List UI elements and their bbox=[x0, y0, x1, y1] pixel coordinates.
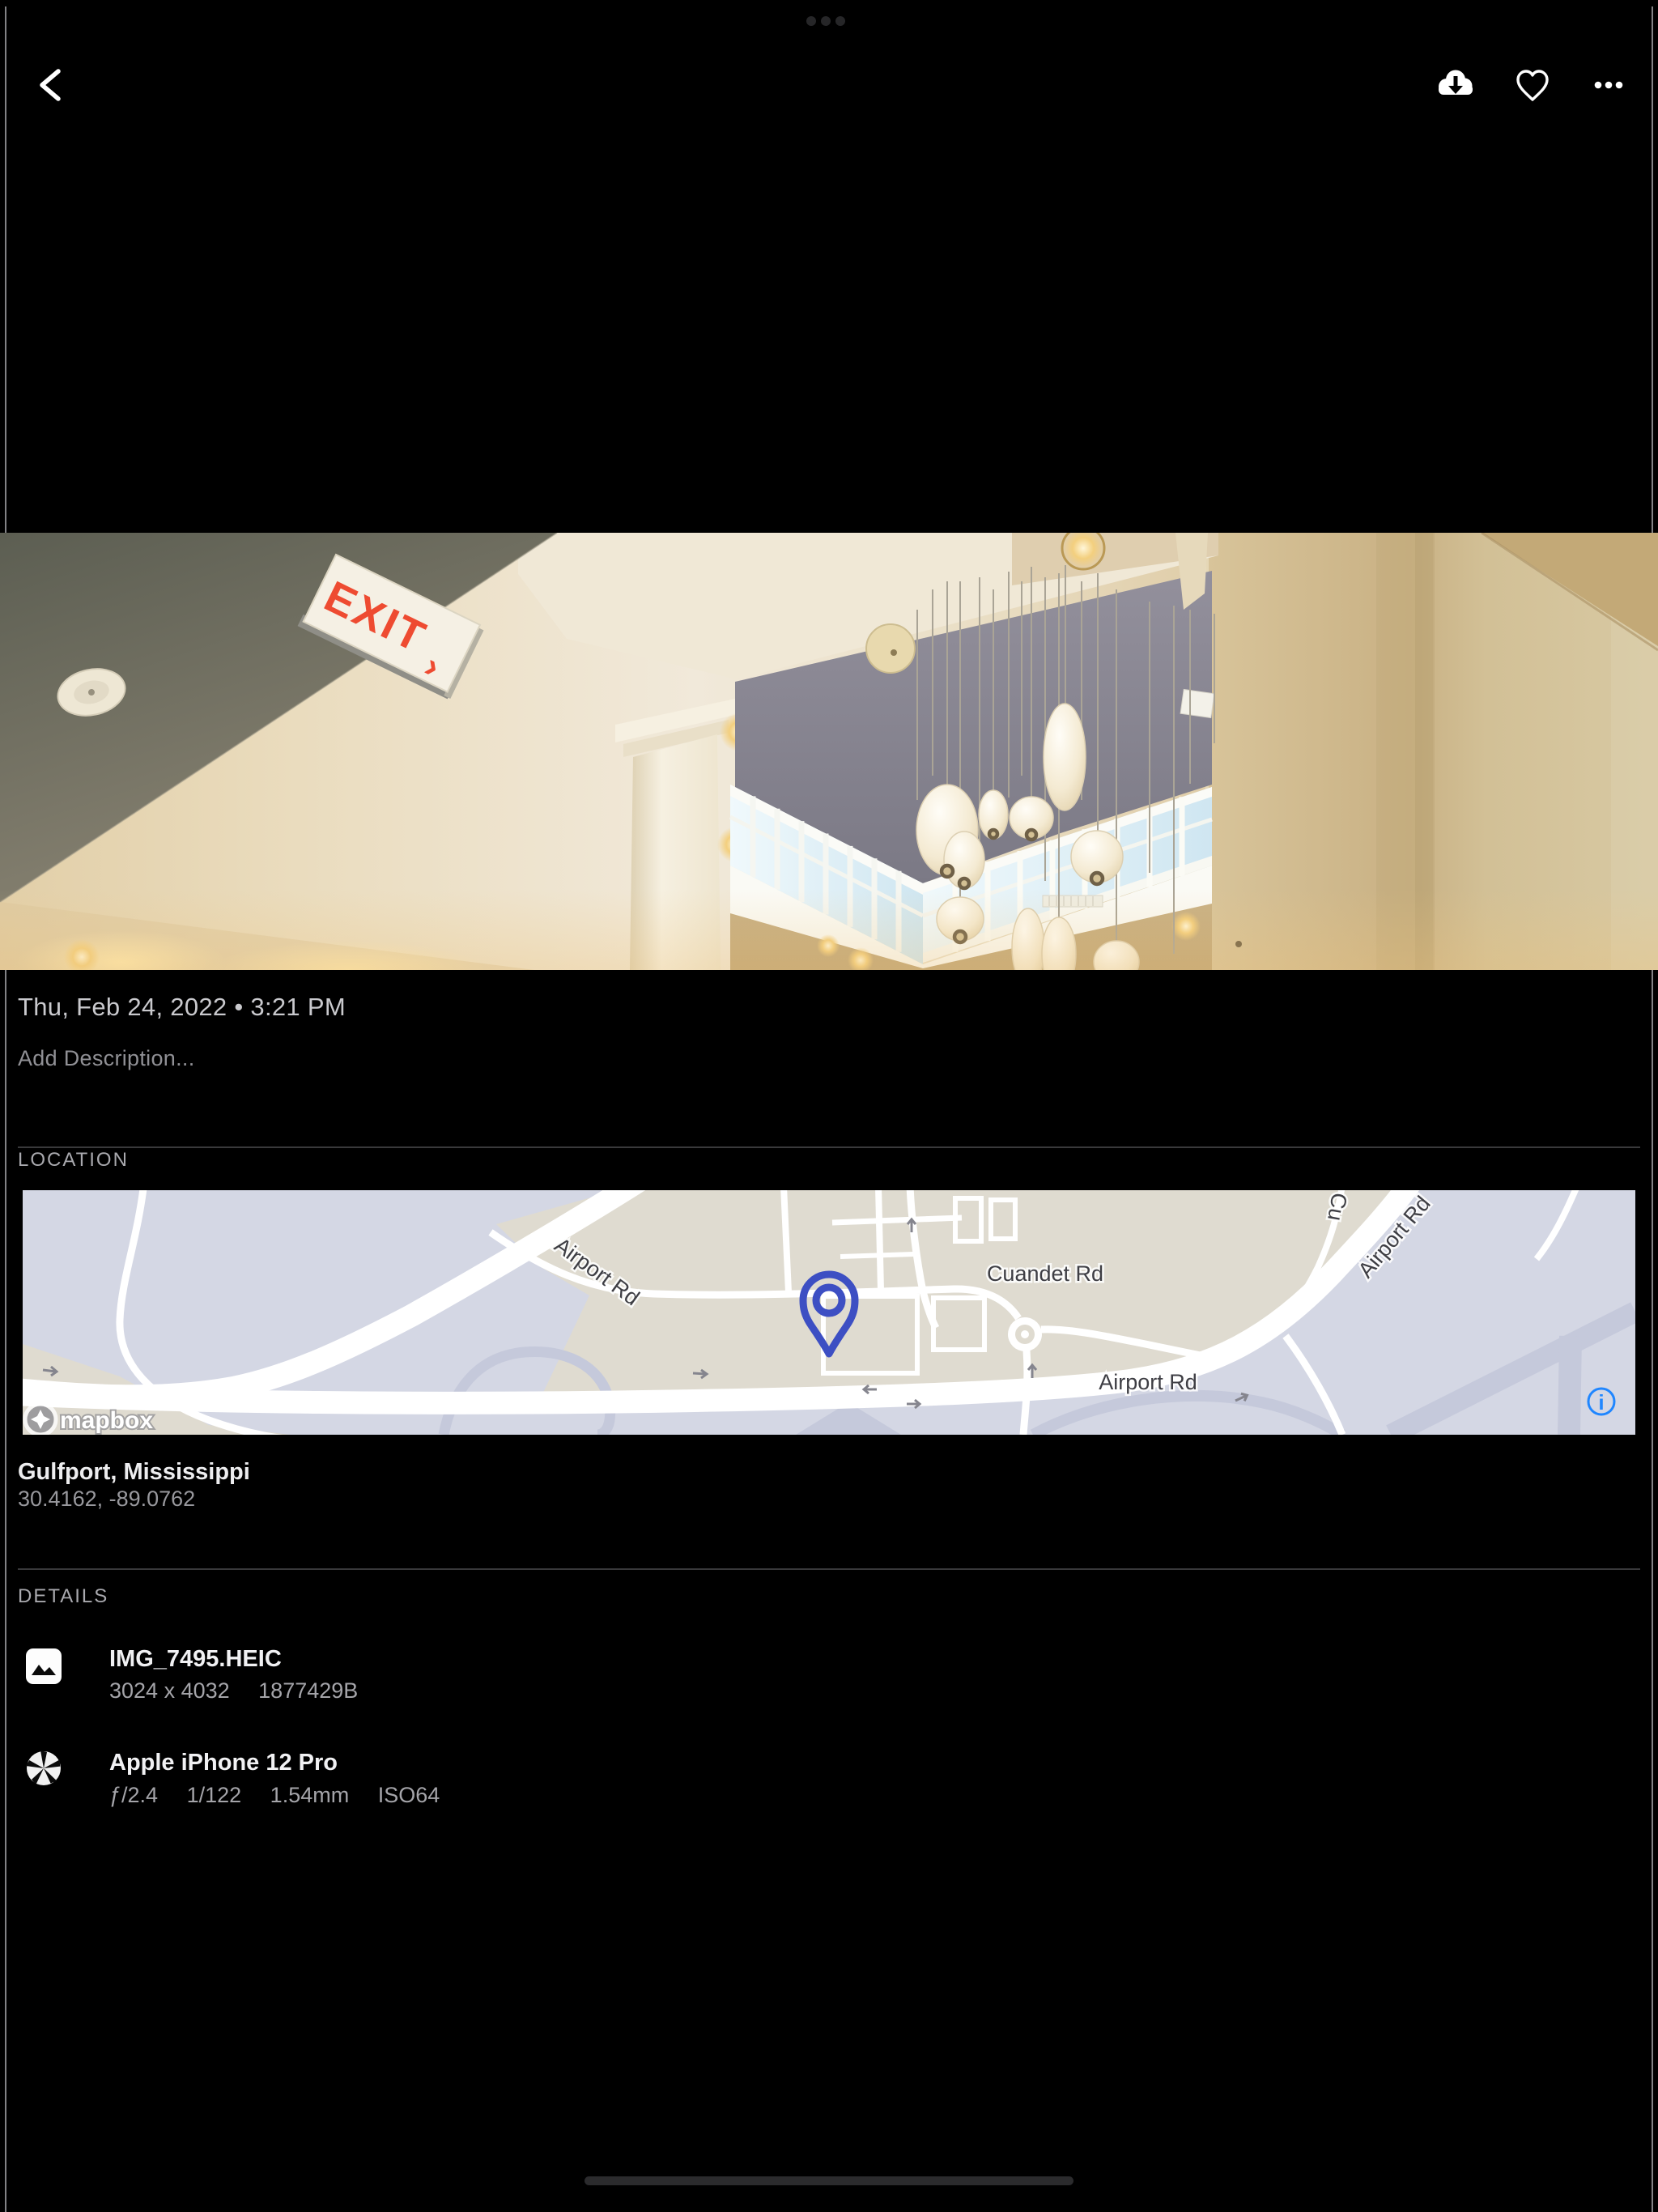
file-meta: 3024 x 4032 1877429B bbox=[109, 1678, 380, 1704]
divider bbox=[18, 1146, 1640, 1148]
location-section-header: LOCATION bbox=[18, 1149, 129, 1172]
home-indicator[interactable] bbox=[585, 2176, 1073, 2185]
file-name: IMG_7495.HEIC bbox=[109, 1646, 282, 1673]
location-coordinates: 30.4162, -89.0762 bbox=[18, 1487, 195, 1512]
photo-datetime: Thu, Feb 24, 2022 • 3:21 PM bbox=[18, 993, 346, 1022]
image-file-icon bbox=[24, 1647, 63, 1686]
file-size: 1877429B bbox=[258, 1678, 358, 1703]
photo-scene: EXIT › bbox=[0, 533, 1658, 970]
camera-aperture-icon bbox=[24, 1749, 63, 1788]
divider bbox=[18, 1568, 1640, 1570]
description-input[interactable]: Add Description... bbox=[18, 1046, 195, 1071]
camera-shutter: 1/122 bbox=[187, 1783, 242, 1807]
map-roundabout bbox=[1008, 1317, 1042, 1351]
multitask-dots-icon bbox=[806, 16, 845, 26]
map-label-airport-rd-bottom: Airport Rd bbox=[1099, 1370, 1197, 1394]
back-button[interactable] bbox=[15, 49, 86, 121]
download-button[interactable] bbox=[1420, 49, 1491, 121]
more-button[interactable] bbox=[1573, 49, 1644, 121]
camera-iso: ISO64 bbox=[378, 1783, 440, 1807]
photo-image[interactable]: EXIT › bbox=[0, 533, 1658, 970]
file-dimensions: 3024 x 4032 bbox=[109, 1678, 230, 1703]
right-screen-edge bbox=[1652, 6, 1653, 2212]
photo-detail-screen: EXIT › bbox=[0, 0, 1658, 2212]
mapbox-wordmark: mapbox bbox=[60, 1407, 153, 1434]
ceiling-gold-light bbox=[1062, 533, 1104, 569]
camera-model: Apple iPhone 12 Pro bbox=[109, 1750, 338, 1776]
cloud-download-icon bbox=[1420, 49, 1491, 121]
heart-icon bbox=[1497, 49, 1568, 121]
more-ellipsis-icon bbox=[1573, 49, 1644, 121]
location-place: Gulfport, Mississippi bbox=[18, 1459, 250, 1486]
ceiling-disc bbox=[866, 624, 915, 673]
map-label-cuandet-partial: Cu bbox=[1323, 1191, 1352, 1223]
camera-aperture: ƒ/2.4 bbox=[109, 1783, 158, 1807]
info-icon-glyph: i bbox=[1598, 1390, 1604, 1414]
camera-focal-length: 1.54mm bbox=[270, 1783, 350, 1807]
photo-bottom-glow bbox=[0, 889, 1658, 970]
map-canvas: Airport Rd Cuandet Rd Airport Rd Airport… bbox=[23, 1190, 1635, 1435]
map-label-cuandet-rd: Cuandet Rd bbox=[987, 1261, 1103, 1286]
left-screen-edge bbox=[5, 6, 6, 2212]
favorite-button[interactable] bbox=[1497, 49, 1568, 121]
chevron-left-icon bbox=[15, 49, 86, 121]
camera-settings: ƒ/2.4 1/122 1.54mm ISO64 bbox=[109, 1783, 462, 1808]
mapbox-logo[interactable]: mapbox mapbox bbox=[25, 1404, 153, 1435]
details-section-header: DETAILS bbox=[18, 1585, 108, 1608]
location-map[interactable]: Airport Rd Cuandet Rd Airport Rd Airport… bbox=[23, 1190, 1635, 1435]
wall-speaker bbox=[1180, 690, 1214, 718]
